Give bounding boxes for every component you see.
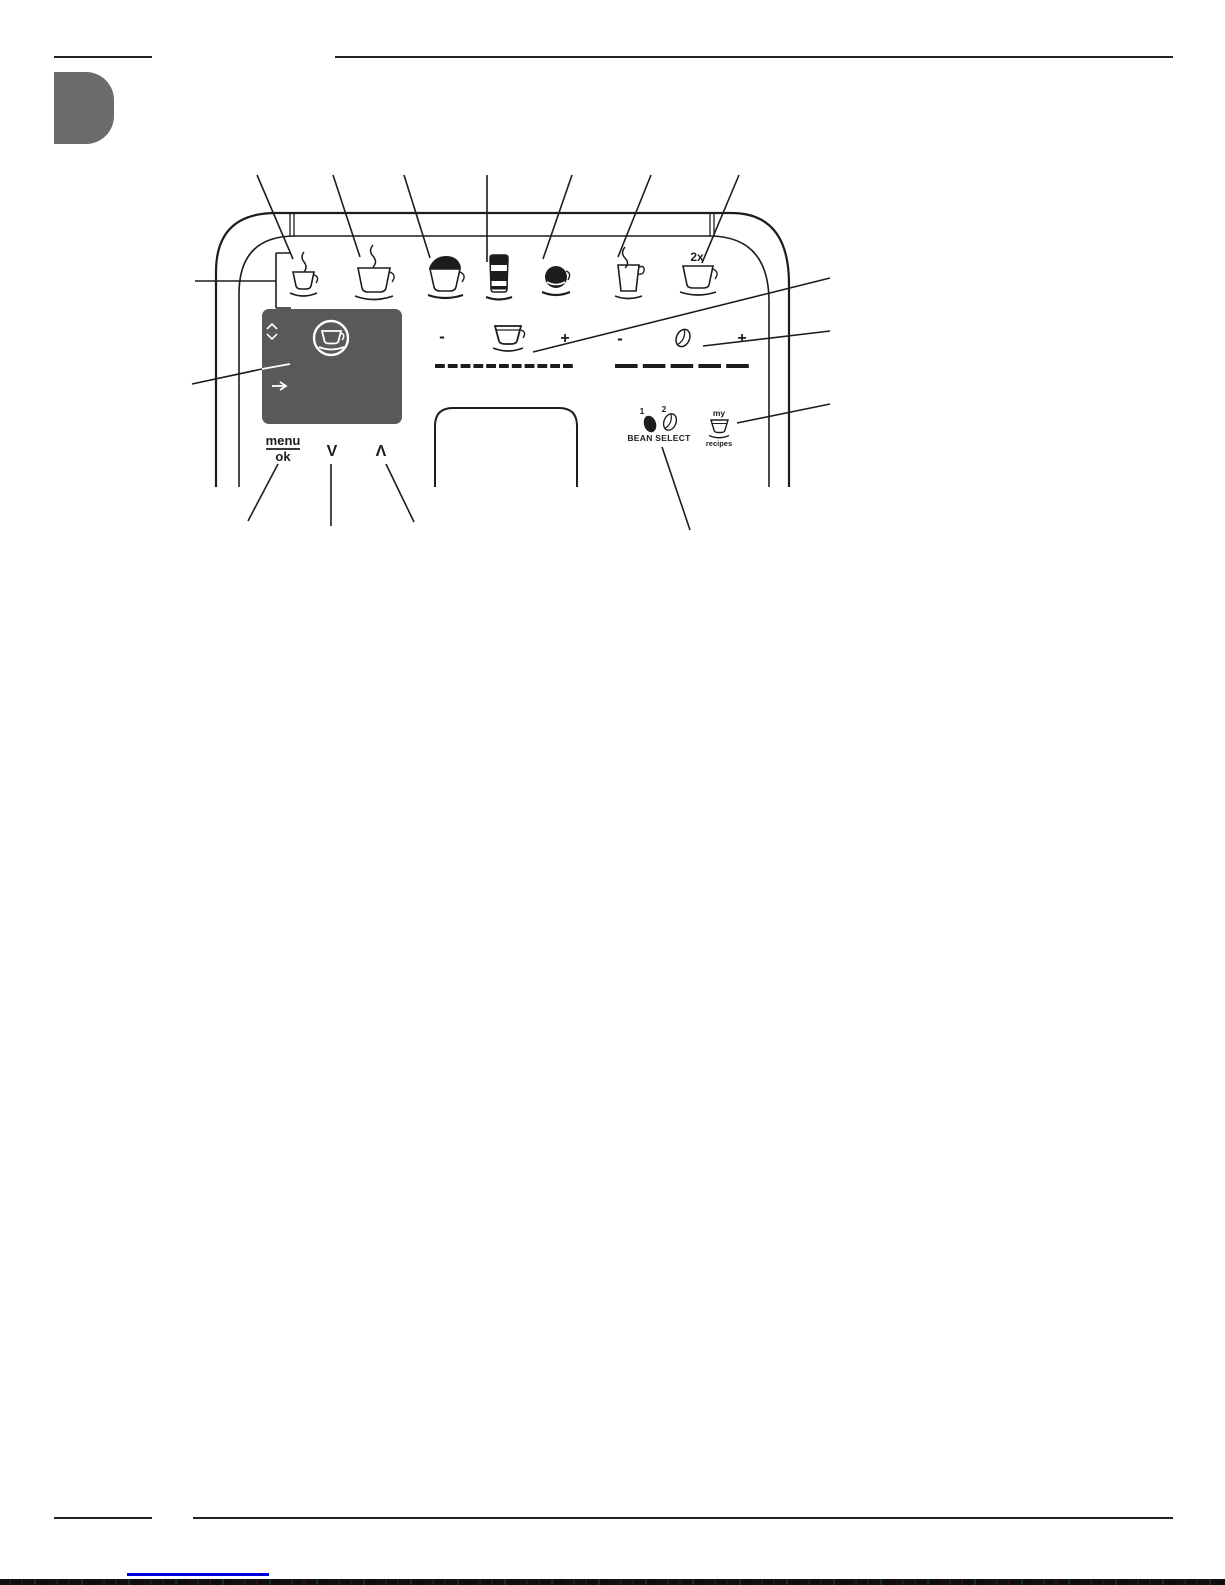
- bean1-filled-icon: [642, 414, 659, 434]
- manual-page: { "figure": { "drink_buttons": [ {"name"…: [0, 0, 1225, 1585]
- recipes-cup-icon: [709, 420, 729, 438]
- my-recipes-button: my recipes: [706, 408, 732, 448]
- control-panel-diagram: 2x menu ok V Λ: [0, 0, 1225, 1585]
- cappuccino-button-icon: [428, 256, 464, 298]
- bean1-label: 1: [640, 406, 645, 416]
- top-callout-lines: [257, 175, 739, 263]
- right-callout-lines: [533, 278, 830, 423]
- bean-select-label: BEAN SELECT: [627, 433, 691, 443]
- volume-minus-label: -: [439, 327, 445, 346]
- bean-select-callout-line: [662, 447, 690, 530]
- strength-minus-label: -: [617, 329, 623, 348]
- cafe-creme-button-icon: [542, 266, 570, 295]
- cup-tray-outline: [435, 408, 577, 487]
- my-label: my: [713, 408, 726, 418]
- espresso-button-icon: [290, 252, 318, 296]
- display-screen: [192, 309, 402, 424]
- espresso-bracket-callout: [195, 253, 291, 308]
- bean2-outline-icon: [661, 412, 678, 432]
- coffee-strength-slider: - +: [615, 327, 753, 366]
- coffee-volume-slider: - +: [435, 326, 573, 366]
- recipes-label: recipes: [706, 439, 732, 448]
- bean-select-switch: 1 2 BEAN SELECT: [627, 404, 691, 530]
- double-espresso-label: 2x: [690, 250, 704, 264]
- menu-ok-button: menu ok: [266, 433, 301, 464]
- ok-label: ok: [275, 449, 291, 464]
- coffee-button-icon: [355, 245, 394, 300]
- display-callout-line: [192, 369, 262, 384]
- menu-label: menu: [266, 433, 301, 448]
- double-espresso-button-icon: 2x: [680, 250, 717, 295]
- latte-macchiato-button-icon: [486, 255, 512, 300]
- up-button-icon: Λ: [376, 443, 387, 460]
- down-button-icon: V: [327, 443, 338, 460]
- bottom-callout-lines: [248, 464, 414, 526]
- strength-plus-label: +: [737, 330, 746, 347]
- bean2-label: 2: [662, 404, 667, 414]
- bean-icon: [673, 327, 692, 349]
- cup-icon: [493, 326, 525, 351]
